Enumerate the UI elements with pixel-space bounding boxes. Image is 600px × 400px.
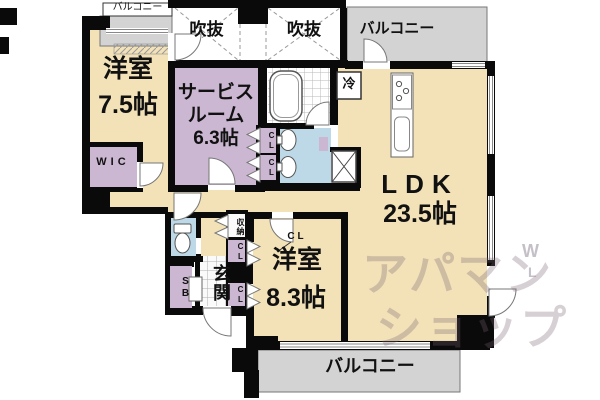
room-wic (87, 145, 137, 190)
swing-door-icon (489, 289, 516, 316)
storage-box (228, 214, 245, 237)
door-gap (196, 238, 201, 254)
swing-door-icon (203, 308, 231, 336)
sliding-door-panel (189, 277, 202, 301)
closet-box (228, 240, 245, 262)
balcony-bottom-area (258, 350, 460, 392)
swing-door-icon (175, 34, 201, 60)
refrigerator-box (337, 72, 361, 99)
floor-plan-svg (0, 0, 600, 400)
closet-box (260, 155, 276, 180)
toilet-icon (174, 224, 191, 233)
floor-plan: バルコニー 吹抜 吹抜 バルコニー 洋室 7.5帖 サービス ルーム 6.3帖 … (0, 0, 600, 400)
room-western2 (253, 218, 341, 341)
closet-box (260, 128, 276, 153)
balcony-top-left-label-box (103, 3, 172, 16)
closet-box (228, 283, 245, 306)
sink-icon (395, 117, 410, 151)
